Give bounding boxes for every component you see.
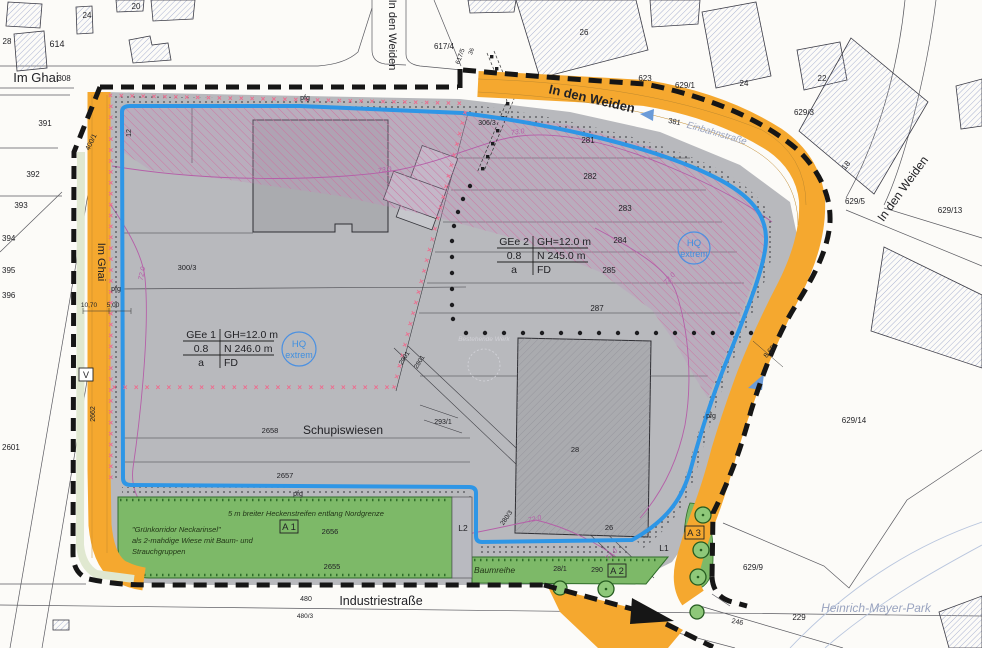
marker-l2: L2	[458, 523, 468, 533]
parcel-label-2656: 2656	[322, 527, 339, 536]
parcel-label-28-1: 28/1	[553, 566, 567, 573]
pfg-note: pfg	[111, 286, 121, 293]
pfg-note: pfg	[706, 413, 716, 420]
gee2-grz: 0.8	[507, 250, 522, 262]
parcel-label-20: 20	[132, 2, 141, 11]
parcel-label-629-1: 629/1	[675, 81, 696, 90]
gee1-height: N 246.0 m	[224, 343, 273, 355]
park-label: Heinrich-Mayer-Park	[821, 601, 932, 615]
gee1-grz: 0.8	[194, 343, 209, 355]
parcel-label-306-3: 306/3	[478, 120, 496, 127]
parcel-label-395: 395	[2, 266, 16, 275]
parcel-label-392: 392	[26, 170, 40, 179]
hq1-line1: HQ	[292, 339, 306, 350]
parcel-label-617-4: 617/4	[434, 42, 455, 51]
existing-building-note: Bestehende Werk	[458, 336, 510, 343]
parcel-label-281: 281	[581, 136, 595, 145]
parcel-label-629-3: 629/3	[794, 108, 815, 117]
parcel-label-393: 393	[14, 201, 28, 210]
parcel-label-28: 28	[3, 37, 12, 46]
hq2-line2: extrem	[680, 249, 708, 259]
parcel-label-629-14: 629/14	[842, 416, 867, 425]
corridor-note-line2: als 2-mahdige Wiese mit Baum- und	[132, 536, 254, 545]
marker-a1: A 1	[282, 522, 296, 533]
parcel-label-22: 22	[818, 74, 827, 83]
marker-a2: A 2	[610, 566, 624, 577]
parcel-label-282: 282	[583, 172, 597, 181]
parcel-label-2658: 2658	[262, 426, 279, 435]
parcel-label-2662: 2662	[90, 406, 97, 422]
parcel-label-26-top: 26	[580, 28, 589, 37]
gee1-name: GEe 1	[186, 329, 216, 341]
parcel-label-623: 623	[638, 74, 652, 83]
hq1-line2: extrem	[285, 350, 313, 360]
dim-road-width: 10,70	[81, 302, 98, 309]
parcel-label-391: 391	[38, 119, 52, 128]
parcel-label-2601: 2601	[2, 443, 20, 452]
street-label-im-ghai: Im Ghai	[13, 70, 59, 85]
building-hall-east-hatch	[515, 338, 651, 537]
parcel-label-394: 394	[2, 234, 16, 243]
parcel-label-629-5: 629/5	[845, 197, 866, 206]
marker-a3: A 3	[687, 528, 701, 539]
parcel-label-480-3: 480/3	[297, 613, 314, 620]
l2-band	[452, 497, 472, 578]
gee1-roof: FD	[224, 357, 238, 369]
parcel-label-2655: 2655	[324, 562, 341, 571]
street-label-im-ghai-vertical: Im Ghai	[95, 243, 107, 282]
tree-icon	[690, 605, 704, 619]
parcel-label-629-9: 629/9	[743, 563, 764, 572]
parcel-label-229: 229	[792, 613, 806, 622]
zoning-plan-map: × × × × × × × × × × × × × × × × × × × × …	[0, 0, 982, 648]
parcel-label-28b: 28	[571, 445, 579, 454]
hedge-note: 5 m breiter Heckenstreifen entlang Nordg…	[228, 509, 384, 518]
pfg-note: pfg	[293, 491, 303, 498]
gee2-height: N 245.0 m	[537, 250, 586, 262]
street-label-industriestrasse: Industriestraße	[339, 594, 422, 608]
corridor-note-line3: Strauchgruppen	[132, 547, 185, 556]
area-label-schupiswiesen: Schupiswiesen	[303, 423, 383, 437]
gee2-gh: GH=12.0 m	[537, 236, 591, 248]
parcel-label-300-3: 300/3	[178, 263, 197, 272]
dim-strip-width: 5,00	[107, 302, 120, 309]
corridor-note-line1: "Grünkorridor Neckarinsel"	[132, 525, 221, 534]
marker-l1: L1	[659, 543, 669, 553]
parcel-label-614: 614	[49, 39, 64, 49]
parcel-label-284: 284	[613, 236, 627, 245]
parcel-label-24b: 24	[740, 79, 749, 88]
parcel-label-629-13: 629/13	[938, 206, 963, 215]
gee2-name: GEe 2	[499, 236, 529, 248]
parcel-label-293-1: 293/1	[434, 419, 452, 426]
marker-v: V	[83, 370, 89, 380]
baumreihe-label: Baumreihe	[474, 565, 515, 575]
gee1-gh: GH=12.0 m	[224, 329, 278, 341]
gee2-roof: FD	[537, 264, 551, 276]
parcel-label-480: 480	[300, 596, 312, 603]
parcel-label-285: 285	[602, 266, 616, 275]
parcel-label-308: 308	[57, 74, 71, 83]
hq2-line1: HQ	[687, 238, 701, 249]
gee1-a: a	[198, 357, 204, 369]
pfg-note: pfg	[300, 95, 310, 102]
parcel-label-26b: 26	[605, 523, 613, 532]
parcel-label-287: 287	[590, 304, 604, 313]
parcel-label-24: 24	[83, 11, 92, 20]
parcel-label-12: 12	[126, 129, 133, 137]
parcel-label-283: 283	[618, 204, 632, 213]
street-label-in-den-weiden-top: In den Weiden	[386, 0, 398, 70]
parcel-label-396: 396	[2, 291, 16, 300]
parcel-label-290: 290	[591, 567, 603, 574]
zoning-plan-page: × × × × × × × × × × × × × × × × × × × × …	[0, 0, 982, 648]
parcel-label-2657: 2657	[277, 471, 294, 480]
gee2-a: a	[511, 264, 517, 276]
